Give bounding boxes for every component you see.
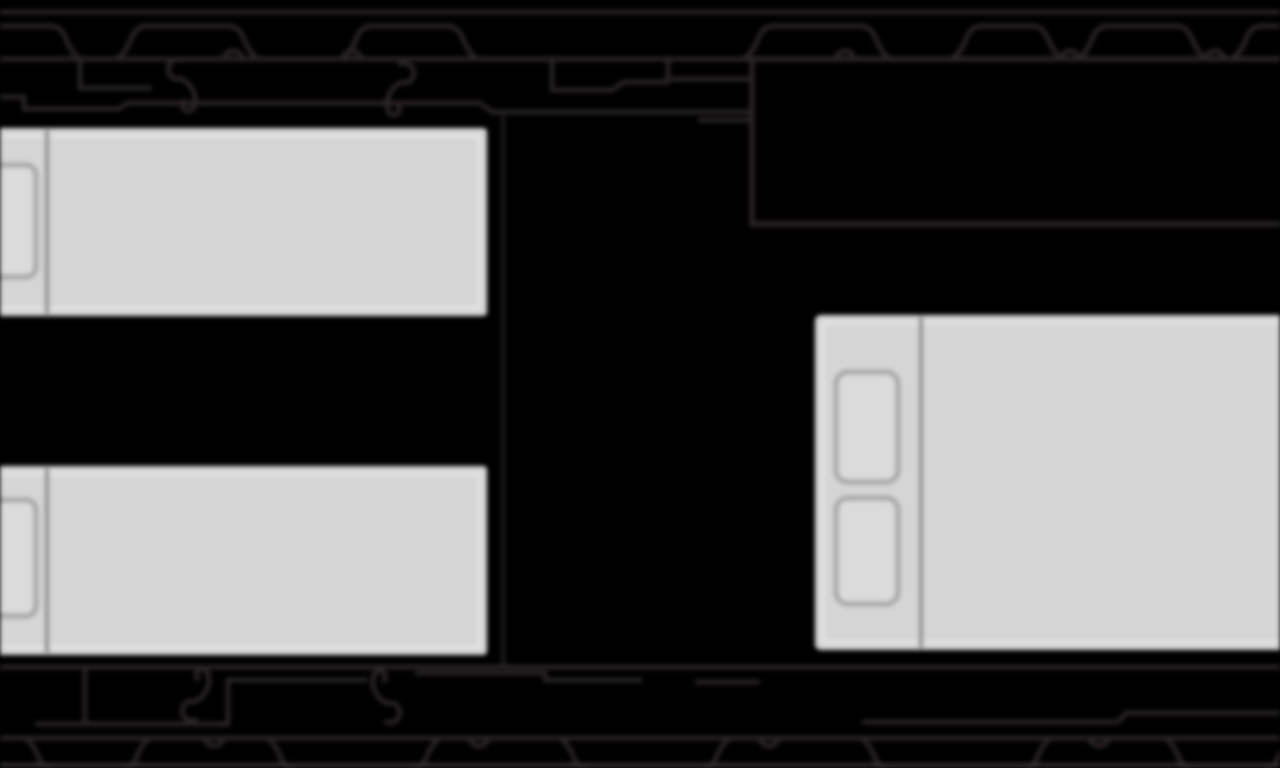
pillow: [0, 165, 36, 277]
pillow: [836, 498, 898, 604]
bed-mattress: [0, 466, 487, 655]
deck-plan-drawing: [0, 0, 1280, 768]
room-upper-right: [752, 59, 1280, 224]
deck-plan-canvas: [0, 0, 1280, 768]
bed-mattress: [0, 128, 487, 316]
bed-lower-left: [0, 466, 487, 655]
bed-lower-right: [815, 315, 1280, 650]
bed-upper-left: [0, 128, 487, 316]
pillow: [0, 500, 36, 616]
pillow: [836, 372, 898, 482]
